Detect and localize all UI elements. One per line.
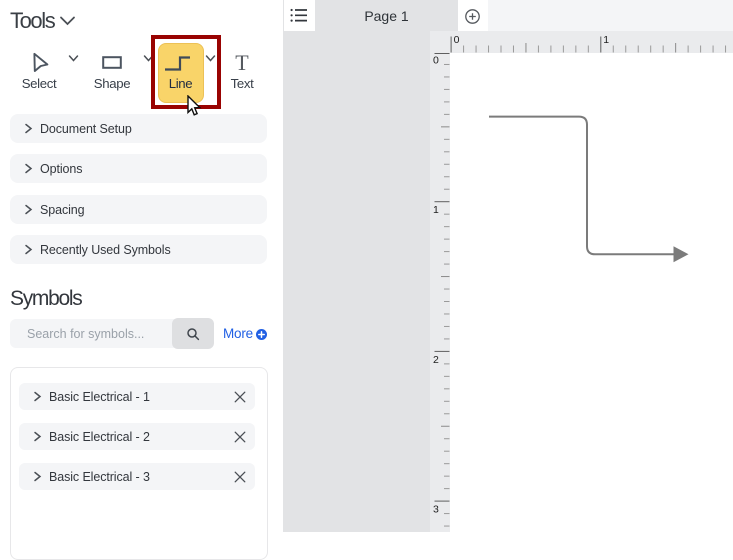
svg-text:2: 2: [433, 354, 439, 366]
svg-text:1: 1: [603, 34, 609, 46]
svg-text:1: 1: [433, 204, 439, 216]
svg-text:0: 0: [454, 34, 460, 46]
svg-text:0: 0: [433, 55, 439, 67]
svg-text:3: 3: [433, 504, 439, 516]
